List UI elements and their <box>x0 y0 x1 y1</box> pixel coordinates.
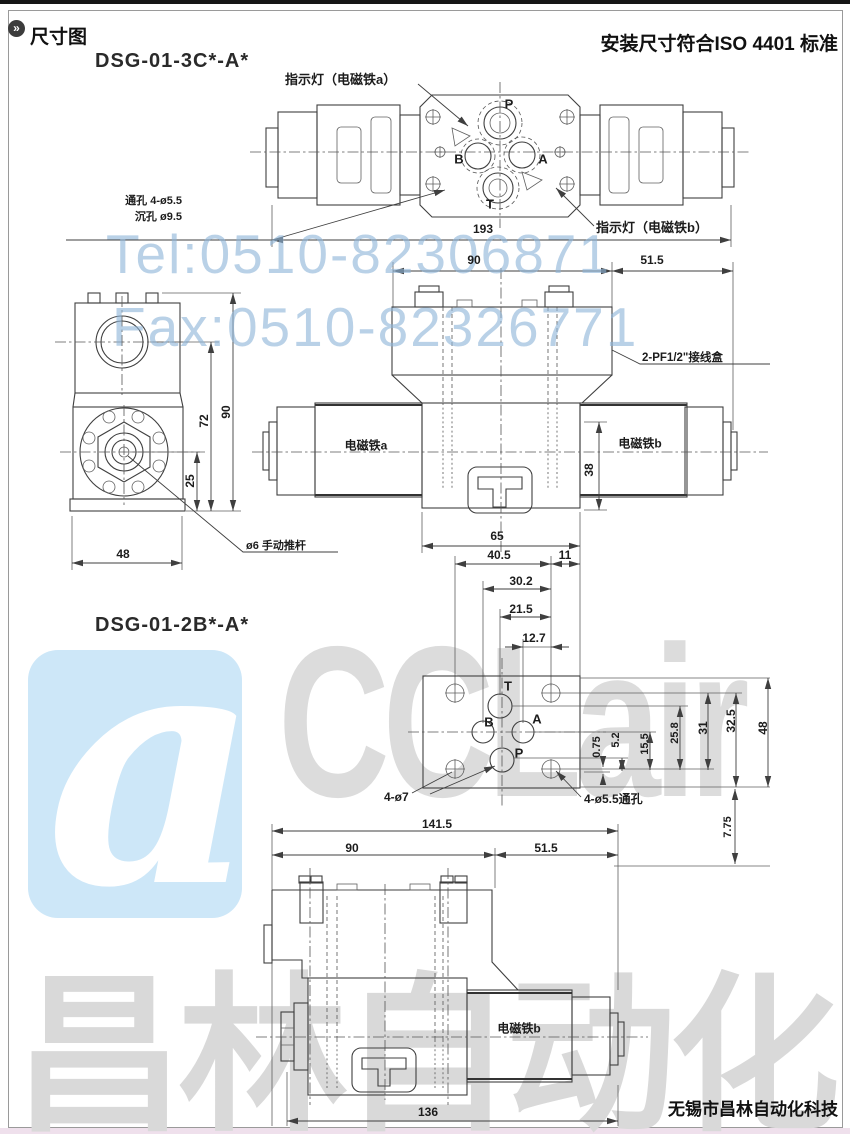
dim-21-5: 21.5 <box>509 602 532 616</box>
dim-25-side: 25 <box>183 474 197 487</box>
dim-25-8: 25.8 <box>669 722 681 743</box>
dim-15-5: 15.5 <box>639 733 651 754</box>
dim-30-2: 30.2 <box>509 574 532 588</box>
model-title-2b: DSG-01-2B*-A* <box>95 614 249 637</box>
dim-7-75: 7.75 <box>722 816 734 837</box>
model-title-3c: DSG-01-3C*-A* <box>95 50 249 73</box>
port-t-label: T <box>486 197 494 212</box>
solenoid-b-label: 电磁铁b <box>618 435 661 452</box>
dim-32-5: 32.5 <box>724 709 738 732</box>
watermark-tel: Tel:0510-82306871 <box>106 222 611 286</box>
indicator-a-label: 指示灯（电磁铁a） <box>285 69 396 88</box>
junction-box-label: 2-PF1/2"接线盒 <box>642 349 723 365</box>
port-p-label-2b: P <box>515 746 524 761</box>
dim-12-7: 12.7 <box>522 631 545 645</box>
dim-5-2: 5.2 <box>610 732 622 747</box>
dim-90-2b: 90 <box>345 841 358 855</box>
solenoid-b-label-2b: 电磁铁b <box>497 1020 540 1037</box>
dim-65: 65 <box>490 529 503 543</box>
dim-141-5: 141.5 <box>422 817 452 831</box>
watermark-fax: Fax:0510-82326771 <box>112 295 638 359</box>
dim-40-5: 40.5 <box>487 548 510 562</box>
page-title: 尺寸图 <box>30 22 87 49</box>
dim-51-5-2b: 51.5 <box>534 841 557 855</box>
dim-48-side: 48 <box>116 547 129 561</box>
section-bullet-icon: » <box>8 20 25 37</box>
dim-11: 11 <box>559 548 572 562</box>
port-b-label: B <box>454 152 463 167</box>
port-p-label: P <box>505 97 514 112</box>
corner-holes-label: 4-ø7 <box>384 790 409 804</box>
manual-pin-label: ø6 手动推杆 <box>246 537 306 553</box>
technical-drawing-lines <box>0 0 850 1134</box>
standard-note: 安装尺寸符合ISO 4401 标准 <box>500 29 838 56</box>
dim-31: 31 <box>696 721 710 734</box>
dim-51-5-3c: 51.5 <box>640 253 663 267</box>
port-a-label-2b: A <box>532 712 541 727</box>
indicator-b-label: 指示灯（电磁铁b） <box>596 217 708 236</box>
through-hole-note: 通孔 4-ø5.5 <box>104 192 182 208</box>
dim-0-75: 0.75 <box>591 736 603 757</box>
through-holes-label: 4-ø5.5通孔 <box>584 790 643 807</box>
dim-136: 136 <box>418 1105 438 1119</box>
dim-90-side: 90 <box>219 405 233 418</box>
dim-90-3c: 90 <box>467 253 480 267</box>
dim-72-side: 72 <box>197 414 211 427</box>
catalog-page: a CCLair 昌林自动化 <box>0 0 850 1134</box>
solenoid-a-label: 电磁铁a <box>345 437 388 454</box>
dim-193: 193 <box>473 222 493 236</box>
dim-48-2b: 48 <box>756 721 770 734</box>
company-name: 无锡市昌林自动化科技 <box>600 1095 838 1120</box>
counterbore-note: 沉孔 ø9.5 <box>104 208 182 224</box>
port-t-label-2b: T <box>504 679 512 694</box>
port-a-label: A <box>538 152 547 167</box>
dim-38: 38 <box>582 463 596 476</box>
port-b-label-2b: B <box>484 715 493 730</box>
